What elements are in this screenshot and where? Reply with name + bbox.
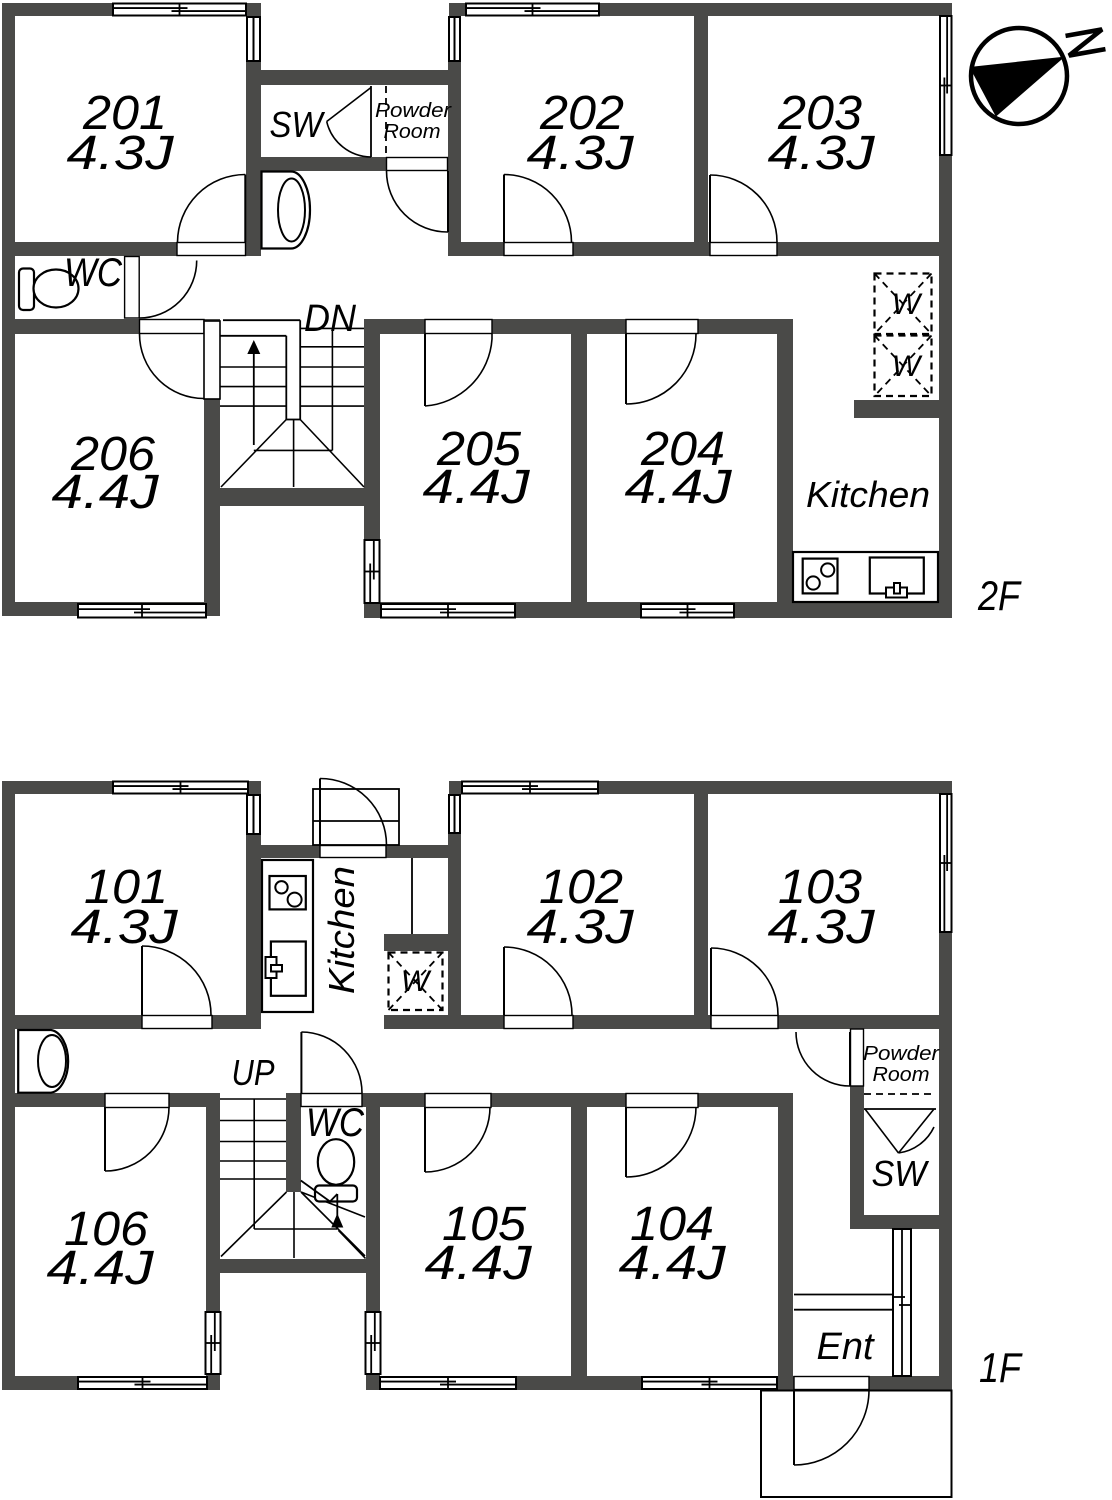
svg-text:UP: UP — [232, 1052, 275, 1093]
svg-text:DN: DN — [304, 298, 357, 340]
svg-text:Kitchen: Kitchen — [321, 866, 362, 994]
svg-text:4.4J: 4.4J — [619, 1237, 727, 1290]
svg-text:4.3J: 4.3J — [67, 127, 175, 180]
svg-text:4.4J: 4.4J — [52, 466, 160, 519]
svg-text:SW: SW — [270, 104, 326, 145]
svg-text:4.4J: 4.4J — [423, 461, 531, 514]
svg-text:4.4J: 4.4J — [47, 1242, 155, 1295]
svg-text:Powder: Powder — [863, 1043, 941, 1065]
svg-text:4.3J: 4.3J — [768, 901, 876, 954]
svg-text:W: W — [892, 350, 923, 383]
svg-text:Powder: Powder — [375, 100, 453, 122]
svg-text:WC: WC — [64, 251, 123, 295]
svg-text:Room: Room — [384, 121, 441, 143]
svg-text:W: W — [892, 288, 923, 321]
svg-text:4.3J: 4.3J — [71, 901, 179, 954]
svg-text:W: W — [401, 965, 432, 998]
svg-text:4.3J: 4.3J — [768, 127, 876, 180]
svg-text:4.4J: 4.4J — [625, 461, 733, 514]
svg-text:Room: Room — [873, 1064, 930, 1086]
svg-text:Ent: Ent — [817, 1326, 875, 1368]
svg-text:2F: 2F — [977, 572, 1022, 619]
svg-text:1F: 1F — [979, 1344, 1023, 1391]
svg-text:SW: SW — [872, 1153, 930, 1194]
svg-text:WC: WC — [306, 1101, 365, 1145]
svg-text:4.3J: 4.3J — [527, 901, 635, 954]
svg-text:4.3J: 4.3J — [527, 127, 635, 180]
svg-text:Kitchen: Kitchen — [806, 474, 930, 515]
svg-text:4.4J: 4.4J — [425, 1237, 533, 1290]
